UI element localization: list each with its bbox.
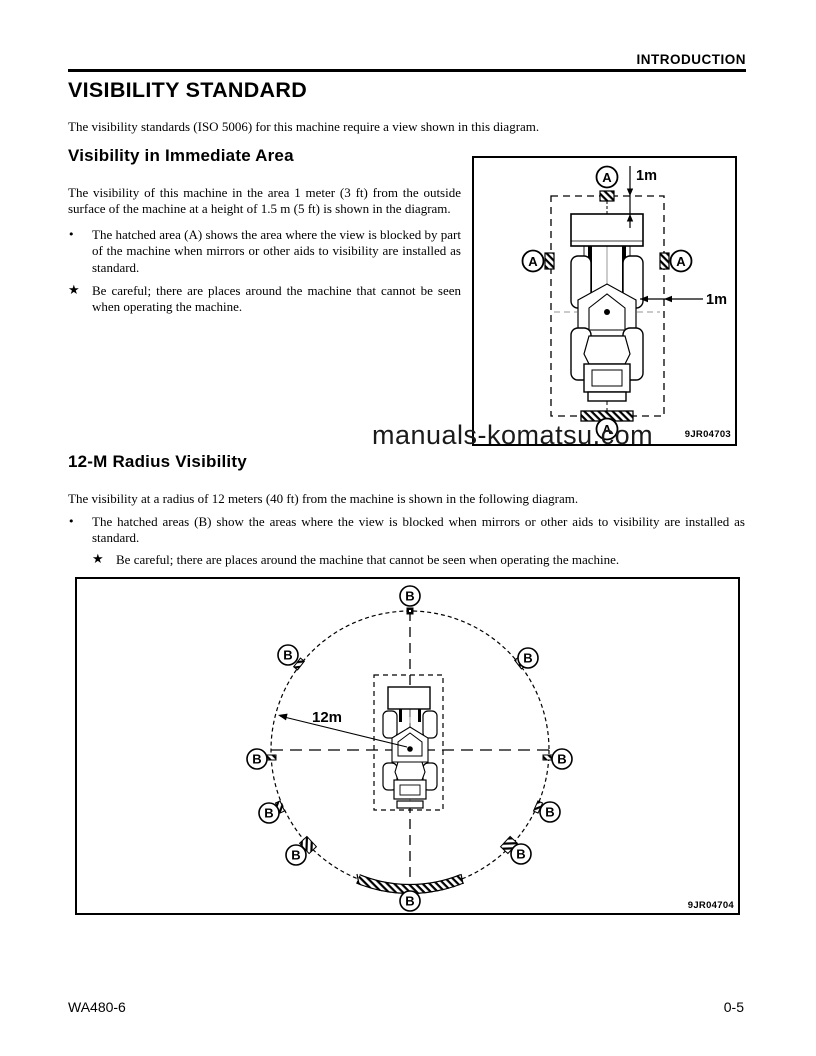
figure-immediate-area: 1m 1m A A A A 9JR04703: [472, 156, 737, 446]
intro-paragraph: The visibility standards (ISO 5006) for …: [68, 119, 688, 136]
label-b-bottom-right: B: [511, 844, 531, 864]
label-b-text: B: [252, 752, 261, 767]
articulation-center: [604, 309, 610, 315]
section1-paragraph: The visibility of this machine in the ar…: [68, 185, 461, 218]
label-b-bottom-left: B: [286, 845, 306, 865]
label-b-lower-left: B: [259, 803, 279, 823]
label-b-text: B: [264, 806, 273, 821]
immediate-area-diagram: 1m 1m A A A A 9JR04703: [474, 158, 734, 443]
section1-text-column: The visibility of this machine in the ar…: [68, 185, 461, 316]
label-b-bottom: B: [400, 891, 420, 911]
lift-arm-left: [399, 709, 402, 722]
bucket: [388, 687, 430, 709]
footer-page-number: 0-5: [724, 999, 744, 1015]
label-a-top: A: [597, 167, 618, 188]
section2-star-item: ★ Be careful; there are places around th…: [92, 552, 742, 568]
star-marker: ★: [92, 552, 116, 568]
rear-frame-taper: [584, 336, 630, 364]
section2-bullet-text: The hatched areas (B) show the areas whe…: [92, 514, 745, 547]
section2-paragraph: The visibility at a radius of 12 meters …: [68, 491, 745, 507]
label-b-text: B: [557, 752, 566, 767]
label-b-text: B: [523, 651, 532, 666]
engine-hood: [400, 785, 420, 795]
figure2-code: 9JR04704: [688, 900, 735, 911]
label-b-text: B: [405, 589, 414, 604]
counterweight: [397, 801, 423, 808]
label-a-right-text: A: [676, 254, 686, 269]
radius-label: 12m: [312, 709, 342, 726]
lift-arm-right: [418, 709, 421, 722]
side-dim-arrow-2: [664, 296, 672, 303]
label-b-text: B: [283, 648, 292, 663]
footer-model: WA480-6: [68, 999, 126, 1015]
label-a-left-text: A: [528, 254, 538, 269]
radius-diagram: 12m B B B B: [77, 579, 737, 912]
marker-top-dot: [409, 610, 411, 612]
label-b-right: B: [552, 749, 572, 769]
side-dim-label: 1m: [706, 292, 727, 308]
star-marker: ★: [68, 283, 92, 316]
label-b-text: B: [405, 894, 414, 909]
top-dim-arrow-down: [627, 189, 633, 197]
machine-top-view-small: [383, 687, 437, 808]
section1-star-text: Be careful; there are places around the …: [92, 283, 461, 316]
counterweight: [588, 392, 626, 401]
label-b-lower-right: B: [540, 802, 560, 822]
running-header: INTRODUCTION: [637, 52, 747, 67]
manual-page: INTRODUCTION VISIBILITY STANDARD The vis…: [0, 0, 816, 1056]
front-wheel-left: [383, 711, 397, 738]
label-a-top-text: A: [602, 170, 612, 185]
front-wheel-right: [423, 711, 437, 738]
section1-star-item: ★ Be careful; there are places around th…: [68, 283, 461, 316]
radius-arrowhead: [278, 714, 288, 721]
blind-spot-left: [545, 253, 554, 269]
label-b-upper-left: B: [278, 645, 298, 665]
label-b-text: B: [516, 847, 525, 862]
page-title: VISIBILITY STANDARD: [68, 78, 307, 103]
figure1-code: 9JR04703: [685, 429, 731, 440]
figure-12m-radius: 12m B B B B: [75, 577, 740, 915]
section2-heading: 12-M Radius Visibility: [68, 452, 247, 472]
label-a-right: A: [671, 251, 692, 272]
label-b-text: B: [545, 805, 554, 820]
section2-star-text: Be careful; there are places around the …: [116, 552, 742, 568]
section2-bullet-item: • The hatched areas (B) show the areas w…: [68, 514, 745, 547]
machine-top-view: [571, 214, 643, 401]
section1-bullet-text: The hatched area (A) shows the area wher…: [92, 227, 461, 276]
section1-heading: Visibility in Immediate Area: [68, 146, 294, 166]
rear-frame-taper: [395, 762, 425, 780]
top-dim-label: 1m: [636, 168, 657, 184]
bullet-marker: •: [68, 227, 92, 276]
articulation-center: [407, 746, 413, 752]
watermark: manuals-komatsu.com: [372, 420, 653, 451]
label-b-top: B: [400, 586, 420, 606]
bullet-marker: •: [68, 514, 92, 547]
section1-bullet-item: • The hatched area (A) shows the area wh…: [68, 227, 461, 276]
header-rule: [68, 69, 746, 72]
label-b-text: B: [291, 848, 300, 863]
blind-spot-front: [600, 191, 614, 201]
engine-hood: [592, 370, 622, 386]
label-b-upper-right: B: [518, 648, 538, 668]
blind-spot-right: [660, 253, 669, 269]
label-a-left: A: [523, 251, 544, 272]
label-b-left: B: [247, 749, 267, 769]
